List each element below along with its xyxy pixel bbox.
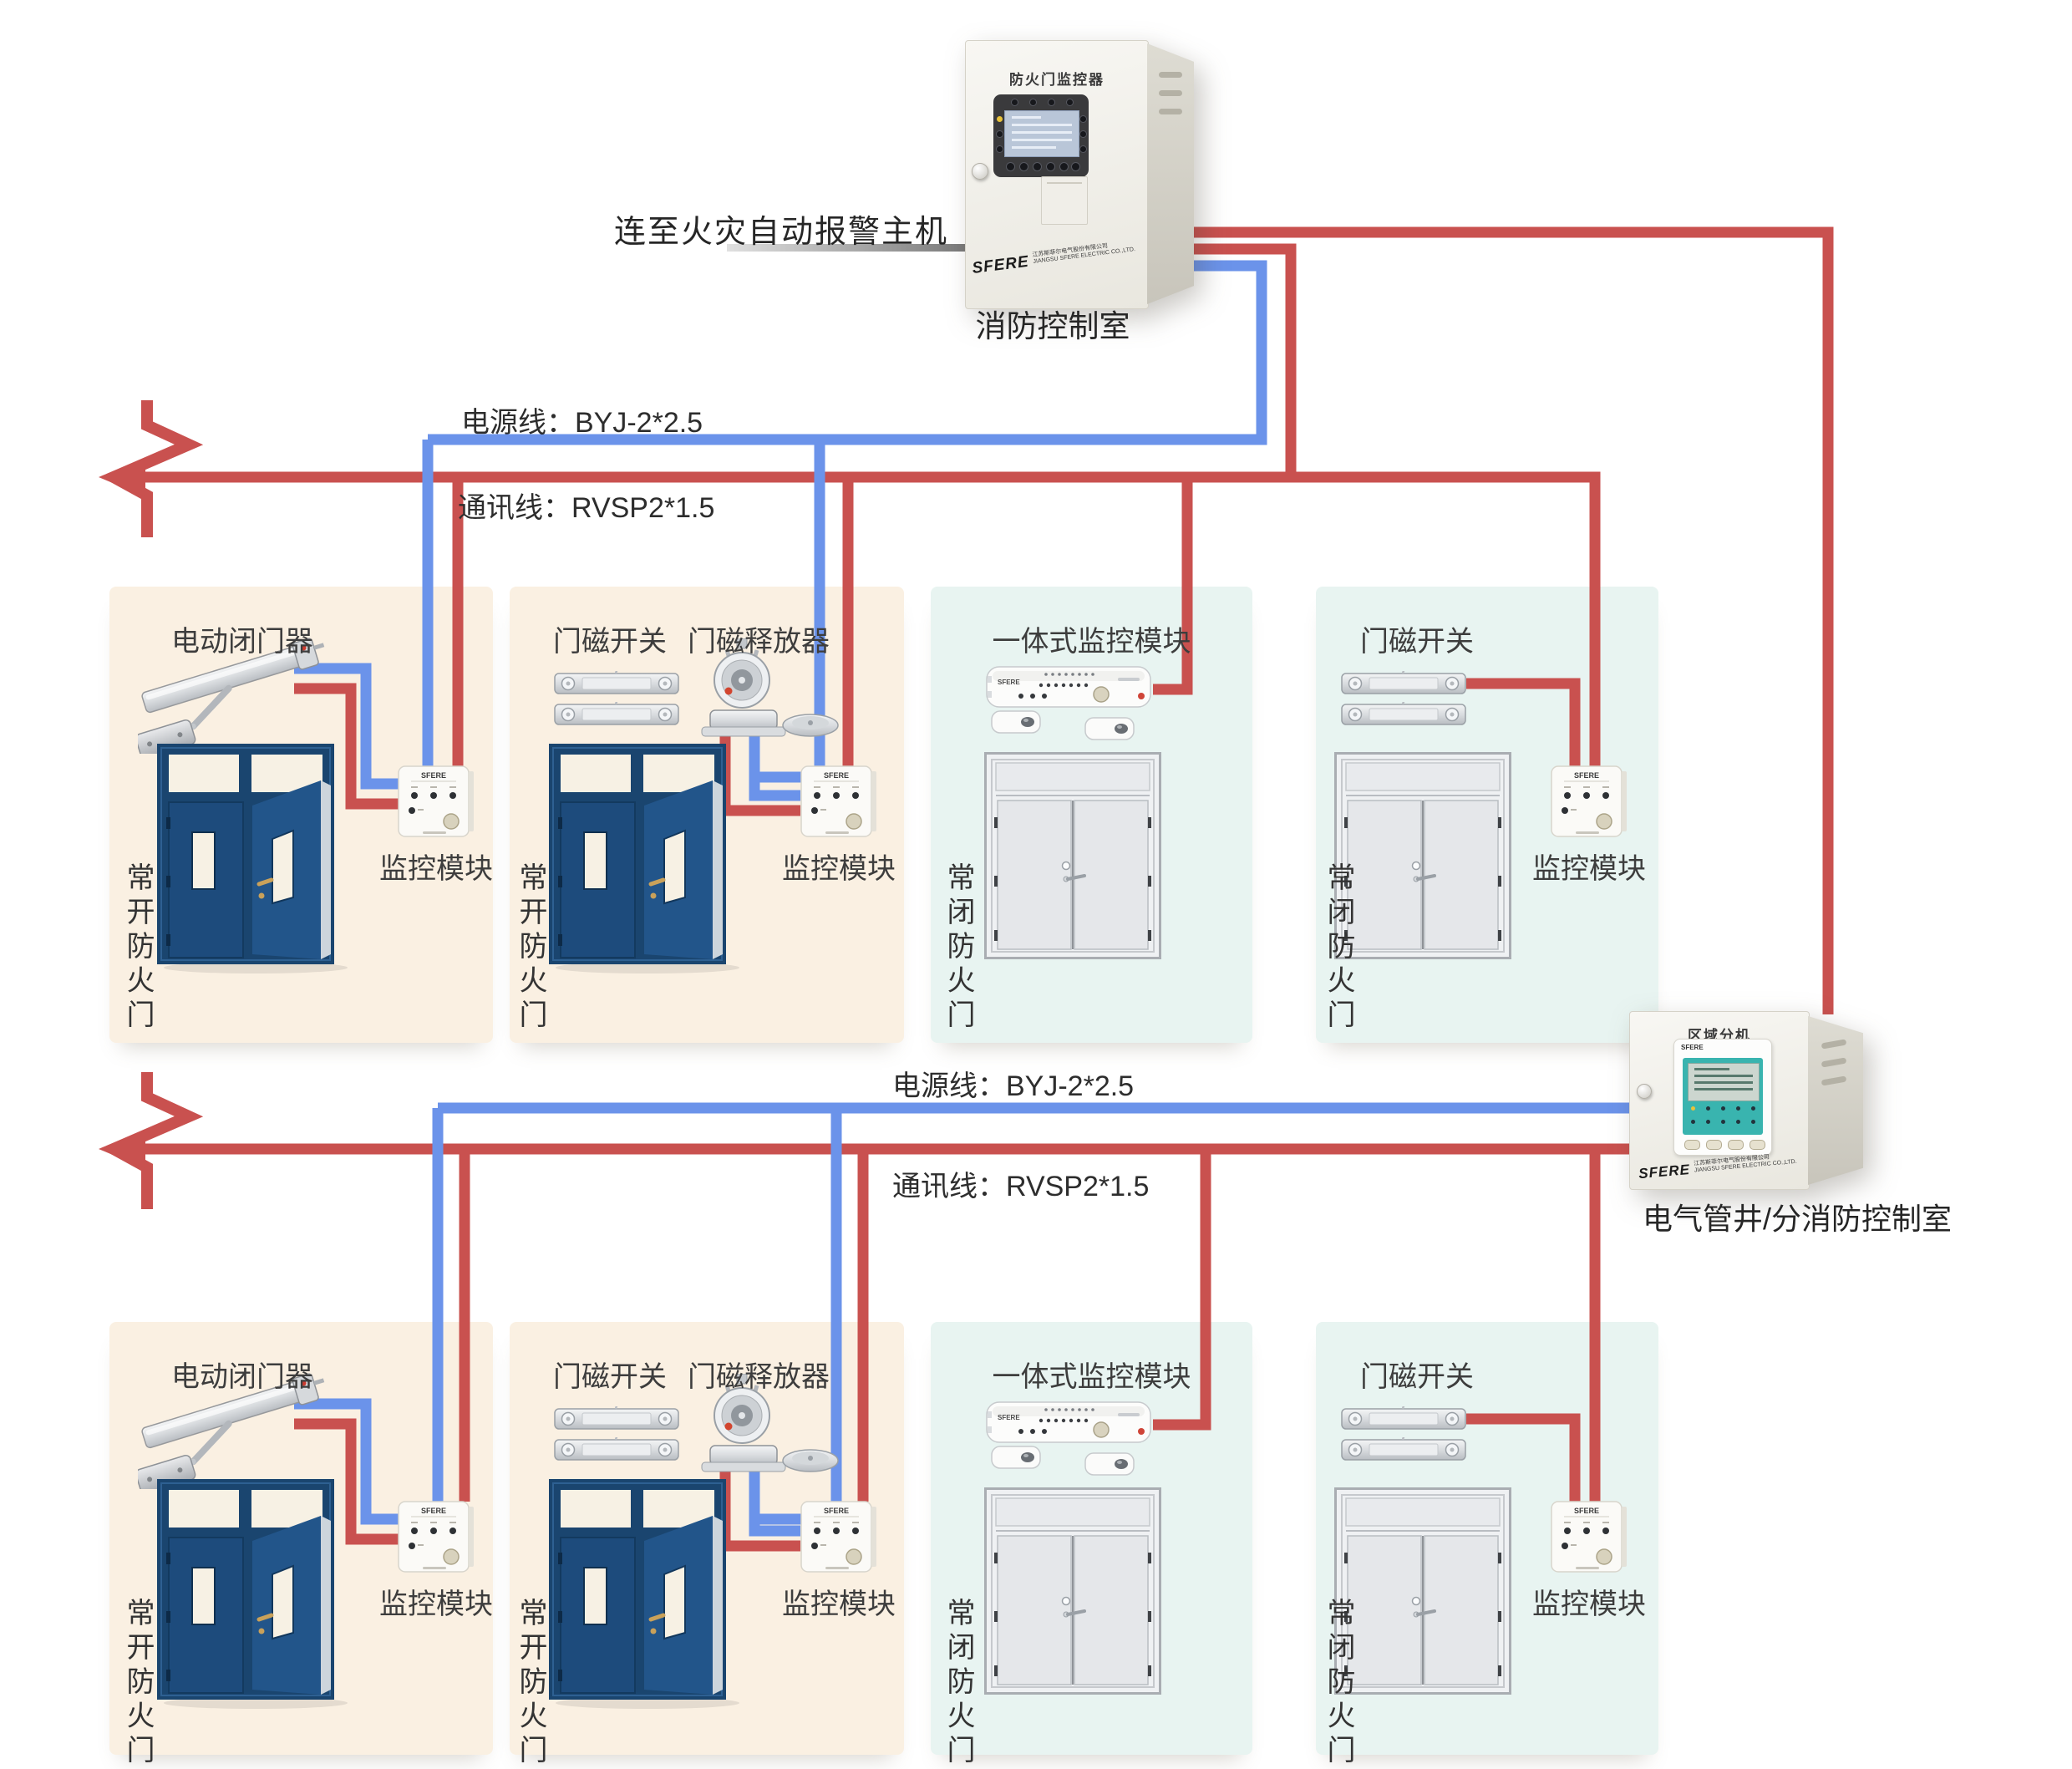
meter-face	[1683, 1058, 1763, 1135]
monitor-module	[1551, 1500, 1628, 1577]
door-sensor-block	[1084, 717, 1135, 740]
area-extension-cabinet: 区域分机 SFERE SFERE 江苏斯菲尔电气股份有限公司JIANGSU SF…	[1629, 1011, 1865, 1190]
area-extension-brand: SFERE 江苏斯菲尔电气股份有限公司JIANGSU SFERE ELECTRI…	[1638, 1152, 1797, 1182]
monitor-module	[398, 1500, 475, 1577]
door-label: 常闭防火门	[1324, 862, 1353, 1034]
release-disc	[781, 1447, 840, 1472]
meter-brand: SFERE	[1681, 1044, 1704, 1051]
alarm-host-link-label: 连至火灾自动报警主机	[614, 206, 948, 252]
controller-lock-knob	[972, 163, 988, 180]
closed-fire-door	[984, 752, 1161, 959]
power-line-label-row2: 电源线：BYJ-2*2.5	[892, 1063, 1134, 1104]
magnet-switch-bar	[554, 702, 679, 725]
controller-side	[1147, 43, 1194, 304]
magnet-switch-bar	[554, 671, 679, 694]
module-label: 监控模块	[378, 846, 495, 887]
area-extension-meter: SFERE	[1673, 1039, 1772, 1156]
controller-screen	[1004, 110, 1079, 157]
module-label: 监控模块	[1531, 846, 1648, 887]
integrated-monitor-module	[986, 663, 1153, 711]
comm-line-label-row2: 通讯线：RVSP2*1.5	[892, 1163, 1149, 1204]
door-sensor-block	[991, 1446, 1041, 1469]
door-label: 常闭防火门	[944, 1598, 973, 1769]
area-extension-side	[1808, 1016, 1863, 1185]
closed-fire-door	[1334, 1487, 1511, 1695]
closed-fire-door	[984, 1487, 1161, 1695]
module-label: 监控模块	[378, 1581, 495, 1622]
door-label: 常开防火门	[124, 1598, 152, 1769]
panel-title: 一体式监控模块	[931, 1354, 1252, 1395]
panel-title: 电动闭门器	[171, 618, 313, 659]
controller-front: 防火门监控器 SFERE 江苏斯菲尔电气股份有限公司JIANGSU SFERE …	[965, 40, 1149, 309]
monitor-module	[800, 765, 877, 841]
monitor-module	[800, 1500, 877, 1577]
door-sensor-block	[1084, 1452, 1135, 1476]
comm-line-label-row1: 通讯线：RVSP2*1.5	[458, 485, 714, 526]
open-fire-door	[549, 1479, 791, 1711]
integrated-monitor-module	[986, 1398, 1153, 1446]
magnet-switch-bar	[1341, 1406, 1466, 1430]
panel-title: 门磁开关	[1360, 1354, 1474, 1395]
area-extension-knob	[1637, 1084, 1652, 1099]
sfere-logo: SFERE	[971, 253, 1030, 278]
controller-display-bezel	[993, 94, 1089, 177]
module-label: 监控模块	[780, 1581, 897, 1622]
closed-fire-door	[1334, 752, 1511, 959]
magnet-switch-bar	[1341, 702, 1466, 725]
panel-title: 门磁开关	[1360, 618, 1474, 659]
magnet-switch-bar	[554, 1437, 679, 1461]
area-extension-front: 区域分机 SFERE SFERE 江苏斯菲尔电气股份有限公司JIANGSU SF…	[1629, 1011, 1810, 1190]
control-room-caption: 消防控制室	[948, 301, 1157, 346]
door-label: 常开防火门	[516, 1598, 545, 1769]
panel-title: 门磁开关	[553, 618, 667, 659]
fire-door-monitoring-diagram: SFERE SFERE	[0, 0, 2072, 1769]
module-label: 监控模块	[780, 846, 897, 887]
fire-door-controller-cabinet: 防火门监控器 SFERE 江苏斯菲尔电气股份有限公司JIANGSU SFERE …	[965, 40, 1195, 309]
door-label: 常闭防火门	[944, 862, 973, 1034]
panel-title-2: 门磁释放器	[688, 1354, 830, 1395]
power-line-label-row1: 电源线：BYJ-2*2.5	[461, 399, 703, 440]
module-label: 监控模块	[1531, 1581, 1648, 1622]
shaft-room-caption: 电气管井/分消防控制室	[1643, 1195, 1952, 1238]
magnet-switch-bar	[1341, 1437, 1466, 1461]
arrowhead-icon	[99, 458, 145, 1168]
panel-title-2: 门磁释放器	[688, 618, 830, 659]
monitor-module	[1551, 765, 1628, 841]
door-label: 常闭防火门	[1324, 1598, 1353, 1769]
release-disc	[781, 712, 840, 737]
controller-printer-door	[1041, 176, 1088, 225]
magnet-switch-bar	[1341, 671, 1466, 694]
panel-title: 门磁开关	[553, 1354, 667, 1395]
meter-lcd	[1688, 1063, 1760, 1101]
monitor-module	[398, 765, 475, 841]
panel-title: 一体式监控模块	[931, 618, 1252, 659]
sfere-logo: SFERE	[1638, 1162, 1690, 1182]
open-fire-door	[157, 744, 399, 976]
magnet-switch-bar	[554, 1406, 679, 1430]
door-sensor-block	[991, 710, 1041, 734]
open-fire-door	[549, 744, 791, 976]
controller-brand: SFERE 江苏斯菲尔电气股份有限公司JIANGSU SFERE ELECTRI…	[971, 240, 1136, 278]
controller-title: 防火门监控器	[966, 68, 1148, 89]
open-fire-door	[157, 1479, 399, 1711]
panel-title: 电动闭门器	[171, 1354, 313, 1395]
door-label: 常开防火门	[124, 862, 152, 1034]
door-label: 常开防火门	[516, 862, 545, 1034]
